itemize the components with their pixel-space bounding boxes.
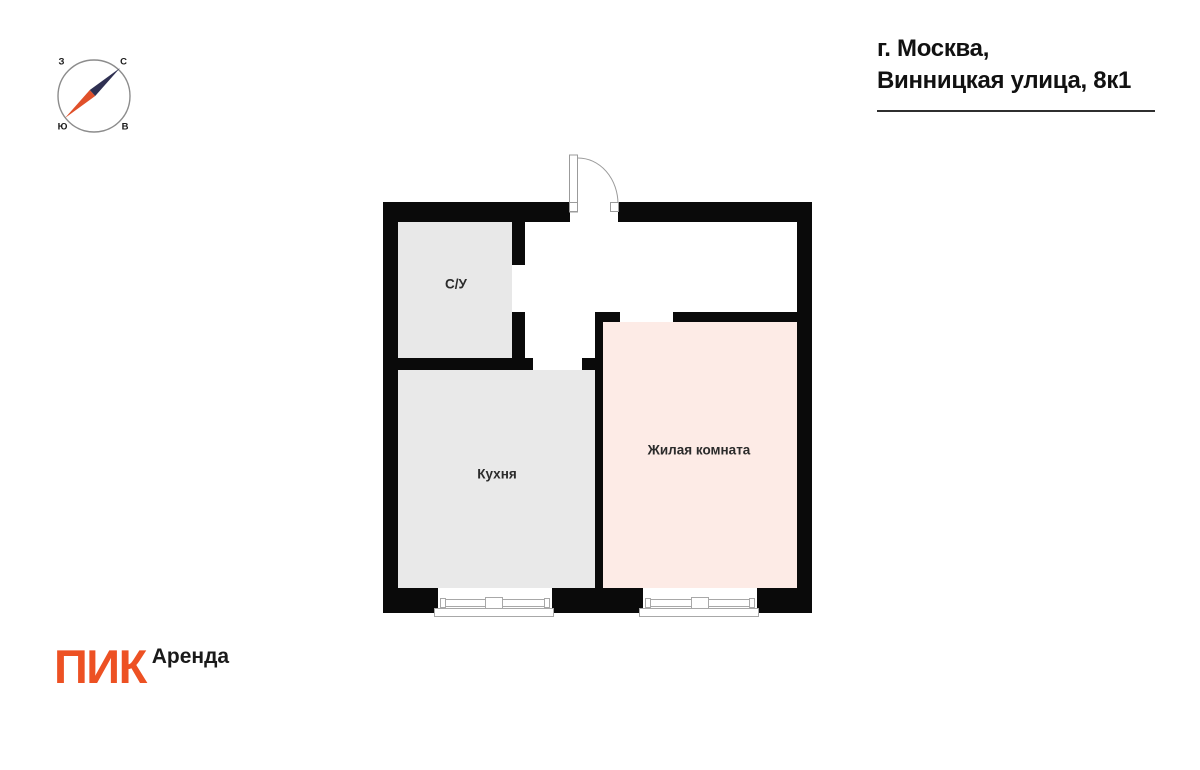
page-title-address: г. Москва, Винницкая улица, 8к1	[877, 33, 1157, 97]
pik-arenda-logo: ПИК Аренда	[54, 645, 229, 690]
compass-icon: З С Ю В	[44, 46, 144, 146]
wall-bathroom-right-upper	[512, 222, 525, 265]
kitchen-window-sill	[434, 608, 554, 617]
living-window-handle	[691, 597, 709, 609]
door-jamb-right	[610, 202, 619, 212]
wall-kitchen-living-divider	[595, 312, 603, 588]
arenda-logo-text: Аренда	[152, 645, 229, 669]
compass-south-label: Ю	[58, 122, 68, 133]
room-label-kitchen: Кухня	[477, 467, 516, 482]
room-label-living: Жилая комната	[648, 443, 751, 458]
compass-needle-south	[65, 90, 95, 118]
wall-bathroom-right-lower	[512, 312, 525, 358]
address-city: г. Москва,	[877, 33, 1157, 65]
wall-right	[797, 202, 812, 613]
compass-west-label: З	[59, 57, 65, 68]
door-swing-arc	[578, 158, 618, 204]
wall-living-top	[673, 312, 797, 322]
wall-left	[383, 202, 398, 613]
kitchen-window-handle	[485, 597, 503, 609]
wall-top-right	[618, 202, 812, 222]
address-street: Винницкая улица, 8к1	[877, 65, 1157, 97]
wall-living-top-stub	[595, 312, 620, 322]
pik-logo-text: ПИК	[54, 645, 146, 690]
wall-top-left	[383, 202, 570, 222]
wall-bottom-left	[383, 588, 438, 613]
kitchen-window-tick-right	[544, 598, 550, 608]
living-window-tick-right	[749, 598, 755, 608]
wall-bottom-middle	[552, 588, 643, 613]
floor-plan-page: З С Ю В г. Москва, Винницкая улица, 8к1	[0, 0, 1200, 770]
compass-east-label: В	[122, 122, 129, 133]
living-window-sill	[639, 608, 759, 617]
compass-north-label: С	[120, 57, 127, 68]
compass-needle-north	[90, 68, 120, 96]
wall-bottom-right	[757, 588, 812, 613]
wall-bathroom-bottom	[398, 358, 533, 370]
living-window-tick-left	[645, 598, 651, 608]
kitchen-window-tick-left	[440, 598, 446, 608]
door-jamb-left	[569, 202, 578, 212]
address-divider-line	[877, 110, 1155, 112]
room-label-bathroom: С/У	[445, 277, 467, 292]
floor-plan: С/У Кухня Жилая комната	[383, 202, 812, 613]
